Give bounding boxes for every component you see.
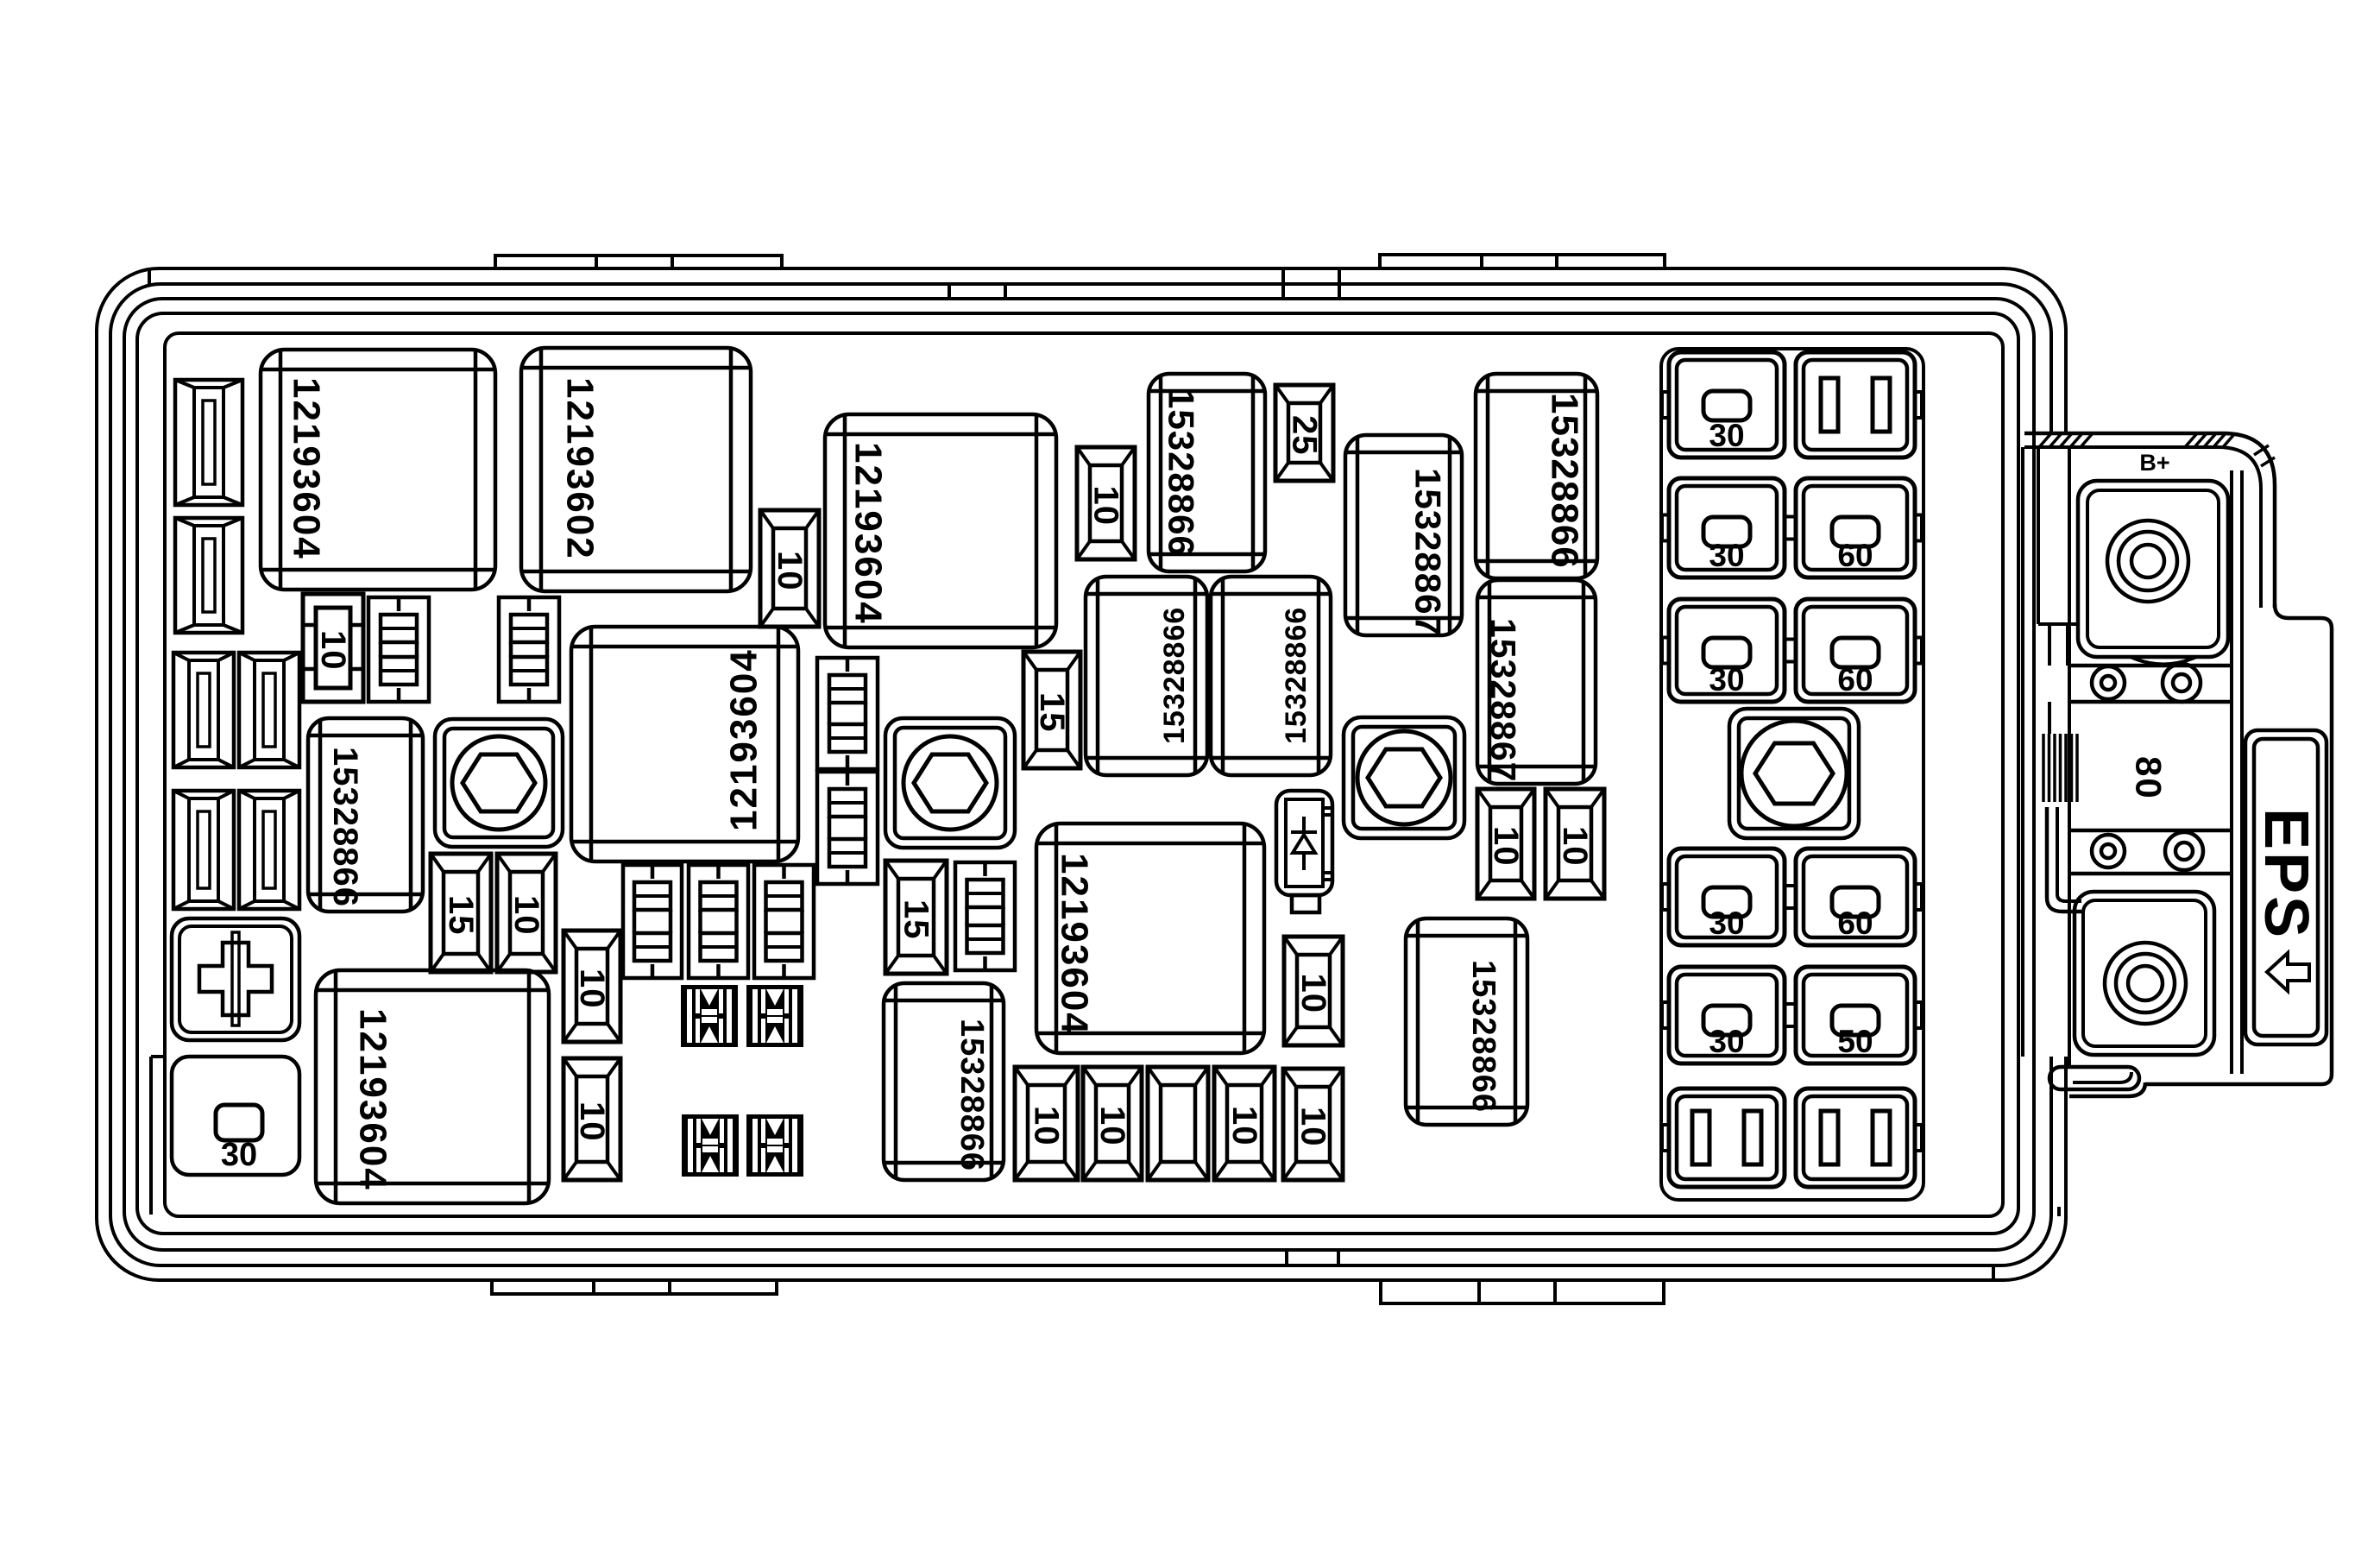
svg-text:12193604: 12193604: [847, 442, 890, 625]
svg-text:10: 10: [1294, 974, 1332, 1014]
svg-text:15328866: 15328866: [1162, 388, 1202, 557]
svg-text:15328867: 15328867: [1483, 618, 1523, 782]
svg-text:80: 80: [2129, 756, 2169, 800]
svg-text:10: 10: [573, 969, 611, 1009]
svg-text:30: 30: [1709, 1024, 1744, 1059]
svg-text:15328867: 15328867: [1408, 468, 1449, 636]
svg-text:15: 15: [1033, 692, 1071, 733]
svg-text:10: 10: [1556, 826, 1594, 867]
svg-text:15328866: 15328866: [954, 1019, 990, 1171]
svg-text:60: 60: [1837, 538, 1873, 573]
svg-text:10: 10: [771, 551, 809, 591]
svg-text:10: 10: [1487, 826, 1525, 867]
svg-text:15328866: 15328866: [1465, 960, 1502, 1113]
svg-text:10: 10: [314, 630, 352, 671]
svg-text:EPS: EPS: [2251, 808, 2320, 940]
svg-text:30: 30: [1709, 906, 1744, 941]
svg-text:12193604: 12193604: [286, 377, 328, 560]
svg-text:10: 10: [507, 895, 545, 936]
svg-text:15: 15: [897, 899, 935, 940]
svg-text:30: 30: [1709, 662, 1744, 697]
svg-text:B+: B+: [2139, 450, 2169, 476]
svg-text:10: 10: [1294, 1107, 1332, 1147]
svg-text:50: 50: [1837, 1024, 1873, 1059]
svg-text:10: 10: [1225, 1106, 1263, 1146]
svg-text:10: 10: [573, 1101, 611, 1142]
svg-text:12193604: 12193604: [723, 648, 765, 831]
svg-text:60: 60: [1837, 662, 1873, 697]
svg-text:15: 15: [442, 895, 480, 936]
svg-text:10: 10: [1087, 486, 1125, 527]
svg-text:12193604: 12193604: [1054, 853, 1096, 1036]
svg-text:15328866: 15328866: [1158, 607, 1191, 744]
svg-text:30: 30: [221, 1137, 257, 1173]
svg-text:10: 10: [1093, 1106, 1131, 1146]
svg-text:12193602: 12193602: [559, 377, 601, 560]
svg-text:25: 25: [1286, 415, 1324, 456]
svg-text:10: 10: [1028, 1106, 1066, 1146]
svg-text:15328866: 15328866: [1544, 393, 1586, 569]
svg-text:12193604: 12193604: [352, 1008, 394, 1191]
svg-text:60: 60: [1837, 906, 1873, 941]
svg-text:15328866: 15328866: [326, 747, 364, 907]
svg-text:30: 30: [1709, 538, 1744, 573]
svg-text:30: 30: [1709, 418, 1744, 453]
svg-text:15328866: 15328866: [1280, 607, 1313, 744]
